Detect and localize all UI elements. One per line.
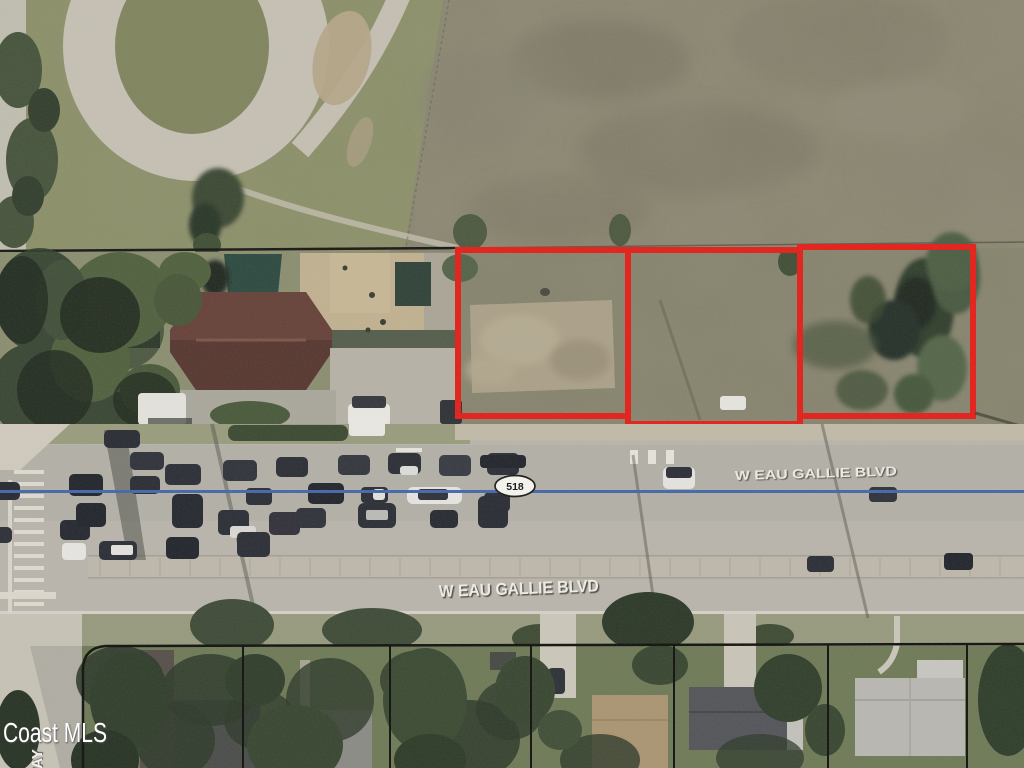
svg-text:Coast MLS: Coast MLS [3, 717, 107, 748]
svg-text:WAY: WAY [29, 749, 46, 768]
